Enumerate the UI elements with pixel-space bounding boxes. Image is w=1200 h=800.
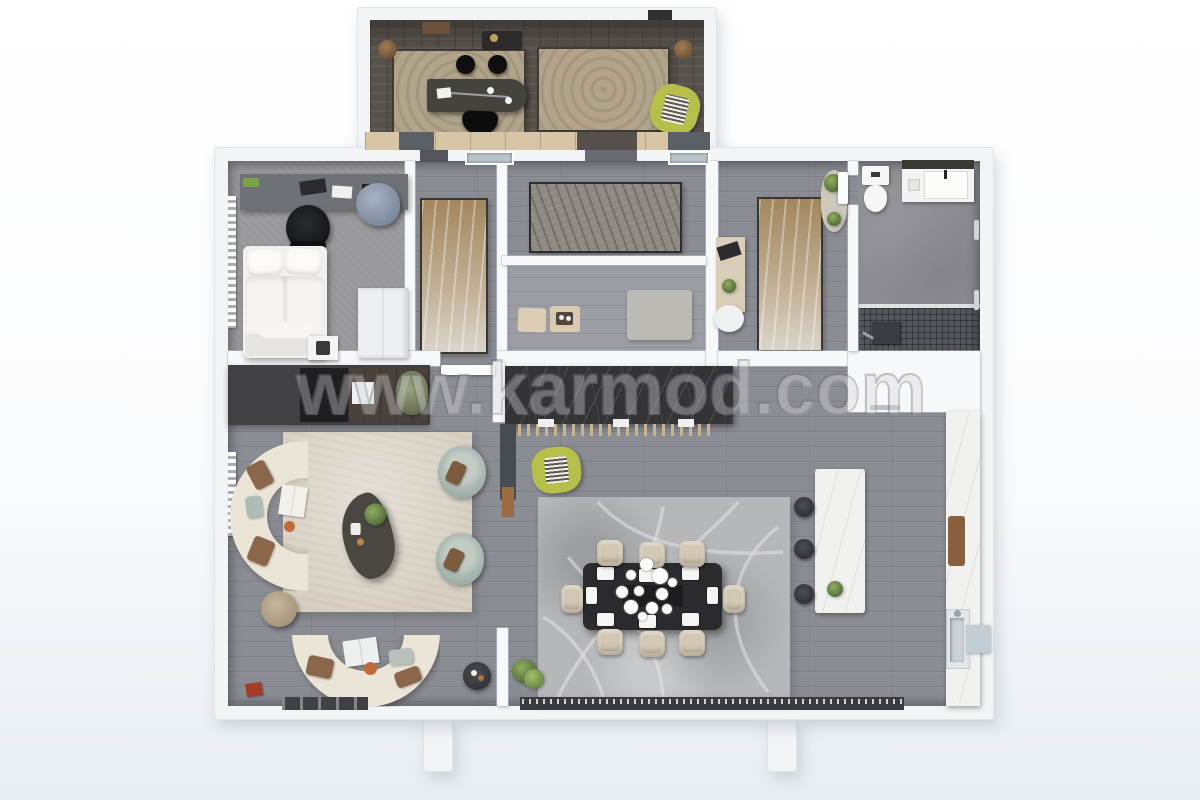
dining-chair-right-end <box>723 585 745 613</box>
window-strip-living <box>282 697 368 710</box>
chandelier-globe <box>668 578 677 587</box>
vanity-shelf <box>902 160 974 169</box>
bar-stool-2 <box>794 539 814 559</box>
open-book <box>278 484 308 517</box>
towel-rail-2 <box>974 290 979 310</box>
railing-ticks <box>522 699 902 704</box>
radiator-bedroom <box>228 196 236 328</box>
tray-cup-1 <box>559 315 564 320</box>
wall-mudroom-top <box>502 256 706 265</box>
bed-pillow-right <box>284 248 322 276</box>
laptop <box>716 241 741 261</box>
studio-wall-shadow <box>370 20 704 48</box>
coffee-machine-dial <box>490 34 498 42</box>
floor-plan-render: www.karmod.com <box>0 0 1200 800</box>
chandelier-globe <box>624 600 638 614</box>
floor-plant <box>512 655 546 695</box>
door-threshold-studio <box>585 149 637 161</box>
side-table-fruit <box>478 675 484 681</box>
desk-mouse <box>505 97 512 104</box>
side-table <box>463 662 491 690</box>
chandelier-globe <box>640 558 653 571</box>
red-book <box>245 682 263 697</box>
toilet-flush-button <box>871 172 880 177</box>
sink-faucet <box>954 610 961 617</box>
bedroom-office-chair <box>286 205 330 251</box>
window-hall-2 <box>668 151 710 165</box>
bed-foot-pillow <box>259 322 311 338</box>
place-setting <box>682 613 699 626</box>
bathroom-door-leaf <box>838 172 848 204</box>
throw-ball-orange <box>284 521 295 532</box>
door-mat-1 <box>518 308 547 333</box>
chandelier-globe <box>652 568 668 584</box>
vanity-faucet <box>944 170 947 179</box>
desk-paper <box>437 87 452 98</box>
studio-work-desk <box>427 79 527 112</box>
desk-paper-sheet <box>332 185 353 198</box>
plant-leaves-2 <box>524 669 544 689</box>
sofa2-ball-orange <box>364 662 377 675</box>
island-plant <box>827 581 843 597</box>
desk-plant <box>722 279 736 293</box>
porch-stub-left <box>424 719 452 771</box>
lounge-cushion <box>660 94 689 126</box>
toilet <box>862 166 889 212</box>
sofa-pillow-teal-1 <box>245 495 264 519</box>
bar-chair-cushion <box>544 456 570 484</box>
dining-chair-bottom-2 <box>639 631 665 657</box>
dining-chair-bottom-1 <box>597 629 623 655</box>
appliance-box <box>966 625 990 653</box>
bed-pillow-left <box>246 249 283 277</box>
towel-rail-1 <box>974 220 979 240</box>
place-setting-end <box>707 587 718 604</box>
bathroom-vanity <box>902 160 974 202</box>
speaker-right <box>674 40 693 59</box>
bedroom-right-rug <box>757 197 823 352</box>
dining-chair-left-end <box>561 585 583 613</box>
studio-stool-2 <box>488 55 507 74</box>
table-tray <box>351 523 361 535</box>
hallway-runner-rug <box>529 182 682 253</box>
white-desk-chair <box>714 305 744 332</box>
chandelier-globe <box>646 602 658 614</box>
chandelier-globe <box>662 604 672 614</box>
bar-side-panel <box>500 424 516 500</box>
speaker-left <box>378 40 397 59</box>
studio-stool-1 <box>456 55 475 74</box>
table-bowl <box>356 538 364 546</box>
porch-stub-right <box>768 719 796 771</box>
wall-mounted-item <box>648 10 672 20</box>
place-setting-end <box>586 587 597 604</box>
side-panel-wood-strip <box>502 487 514 517</box>
armchair-pillow <box>444 460 468 487</box>
bean-bag <box>356 183 400 226</box>
wall-bathroom-left-lower <box>848 205 858 351</box>
coffee-machine <box>482 31 522 50</box>
chandelier <box>612 556 684 622</box>
bedroom-middle-door <box>420 150 448 162</box>
studio-counter-mat <box>422 22 450 34</box>
chandelier-globe <box>638 612 647 621</box>
chandelier-globe <box>656 588 668 600</box>
cutting-board <box>948 516 965 566</box>
mudroom-rug <box>627 290 692 340</box>
door-mat-2 <box>550 306 580 332</box>
bar-stool-1 <box>794 497 814 517</box>
pouf <box>261 591 297 627</box>
chandelier-globe <box>634 586 644 596</box>
chandelier-globe <box>616 586 628 598</box>
cabinet-dark-segment-3 <box>668 132 710 150</box>
wall-living-dining-divider <box>497 628 508 706</box>
window-strip-dining <box>520 697 904 710</box>
desk-laptop <box>299 178 327 195</box>
kitchen-island <box>815 469 865 613</box>
sink-basin <box>950 618 964 662</box>
teal-armchair-1 <box>438 446 486 498</box>
vanity-desk-bedroom-right <box>716 237 745 312</box>
armchair-pillow <box>442 547 466 574</box>
cabinet-dark-segment-2 <box>577 132 637 150</box>
wall-bathroom-left-upper <box>848 161 858 175</box>
cabinet-dark-segment-1 <box>399 132 434 150</box>
tray-cup-2 <box>566 316 571 321</box>
vanity-soap-dish <box>908 179 920 191</box>
bar-stool-3 <box>794 584 814 604</box>
dining-chair-bottom-3 <box>679 630 705 656</box>
desk-arm-lamp <box>451 92 509 98</box>
chandelier-globe <box>626 570 636 580</box>
desk-lamp-dot <box>487 87 494 94</box>
teal-armchair-2 <box>436 533 484 585</box>
shower-head-unit <box>872 322 900 344</box>
sofa2-pillow-teal <box>388 648 414 666</box>
toilet-bowl <box>864 185 887 212</box>
window-hall-1 <box>465 151 514 165</box>
bedroom-middle-rug <box>420 198 488 354</box>
watermark: www.karmod.com <box>296 346 927 431</box>
desk-green-pad <box>243 178 259 187</box>
place-setting <box>682 567 699 580</box>
potted-plant-small <box>827 212 841 226</box>
side-table-cup <box>471 670 477 676</box>
shower-glass-divider <box>858 304 980 308</box>
